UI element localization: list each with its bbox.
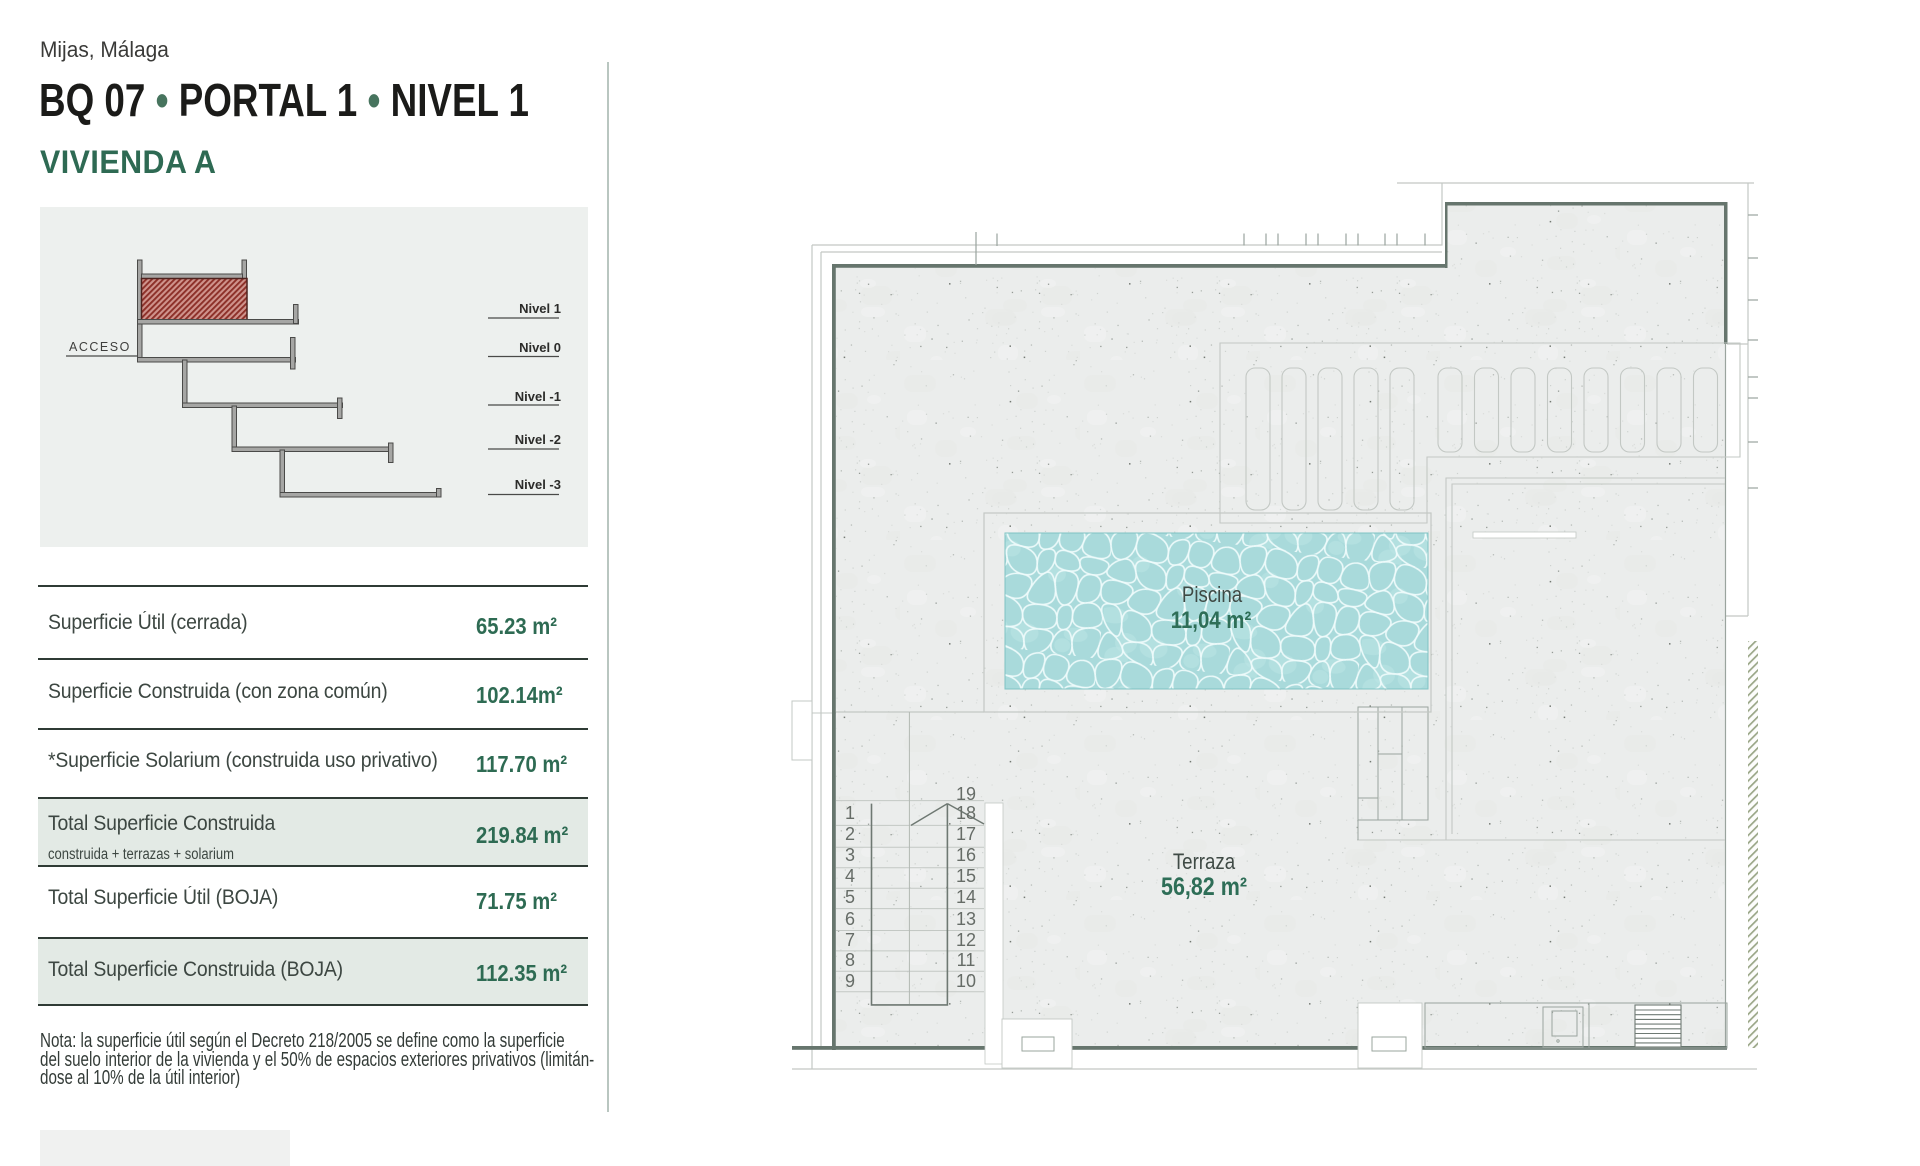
svg-text:11: 11	[957, 950, 976, 970]
svg-text:Terraza: Terraza	[1173, 851, 1236, 875]
svg-text:Nivel -1: Nivel -1	[515, 389, 561, 404]
svg-text:1: 1	[845, 803, 855, 823]
svg-text:5: 5	[845, 887, 855, 907]
svg-text:4: 4	[845, 866, 855, 886]
svg-text:12: 12	[956, 930, 976, 950]
svg-text:3: 3	[845, 845, 855, 865]
svg-text:Nivel -3: Nivel -3	[515, 477, 561, 492]
svg-text:9: 9	[845, 971, 855, 991]
svg-text:Nivel 1: Nivel 1	[519, 301, 561, 316]
svg-text:8: 8	[845, 950, 855, 970]
svg-text:6: 6	[845, 909, 855, 929]
svg-text:19: 19	[956, 784, 976, 804]
svg-text:13: 13	[956, 909, 976, 929]
svg-text:Nivel 0: Nivel 0	[519, 340, 561, 355]
svg-text:7: 7	[845, 930, 855, 950]
svg-text:11,04 m²: 11,04 m²	[1171, 606, 1252, 633]
svg-text:Nivel -2: Nivel -2	[515, 432, 561, 447]
svg-text:Piscina: Piscina	[1182, 584, 1243, 608]
svg-text:17: 17	[956, 824, 976, 844]
svg-text:10: 10	[956, 971, 976, 991]
svg-text:ACCESO: ACCESO	[69, 340, 131, 354]
svg-text:14: 14	[956, 887, 976, 907]
svg-text:2: 2	[845, 824, 855, 844]
svg-text:15: 15	[956, 866, 976, 886]
svg-text:56,82 m²: 56,82 m²	[1161, 872, 1247, 900]
svg-text:18: 18	[956, 803, 976, 823]
svg-text:16: 16	[956, 845, 976, 865]
